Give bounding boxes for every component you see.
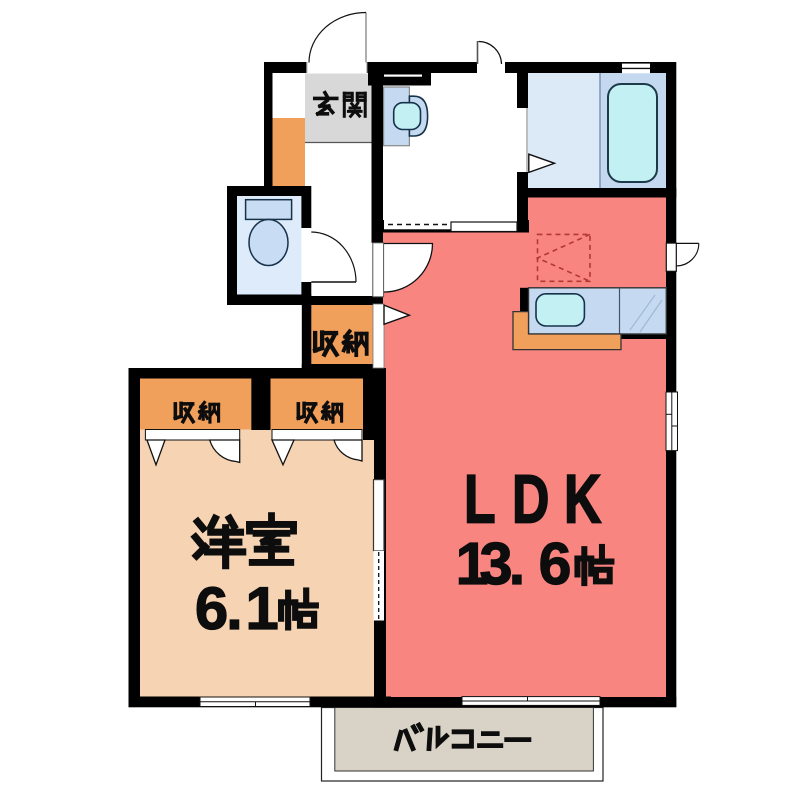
svg-text:.: . xyxy=(509,531,525,597)
svg-text:3: 3 xyxy=(480,531,513,597)
svg-text:.: . xyxy=(226,575,243,642)
svg-text:1: 1 xyxy=(245,575,278,642)
svg-text:L: L xyxy=(464,460,496,537)
svg-text:6: 6 xyxy=(195,575,228,642)
svg-text:D: D xyxy=(512,460,549,537)
svg-text:6: 6 xyxy=(539,531,572,597)
svg-text:K: K xyxy=(564,460,601,537)
